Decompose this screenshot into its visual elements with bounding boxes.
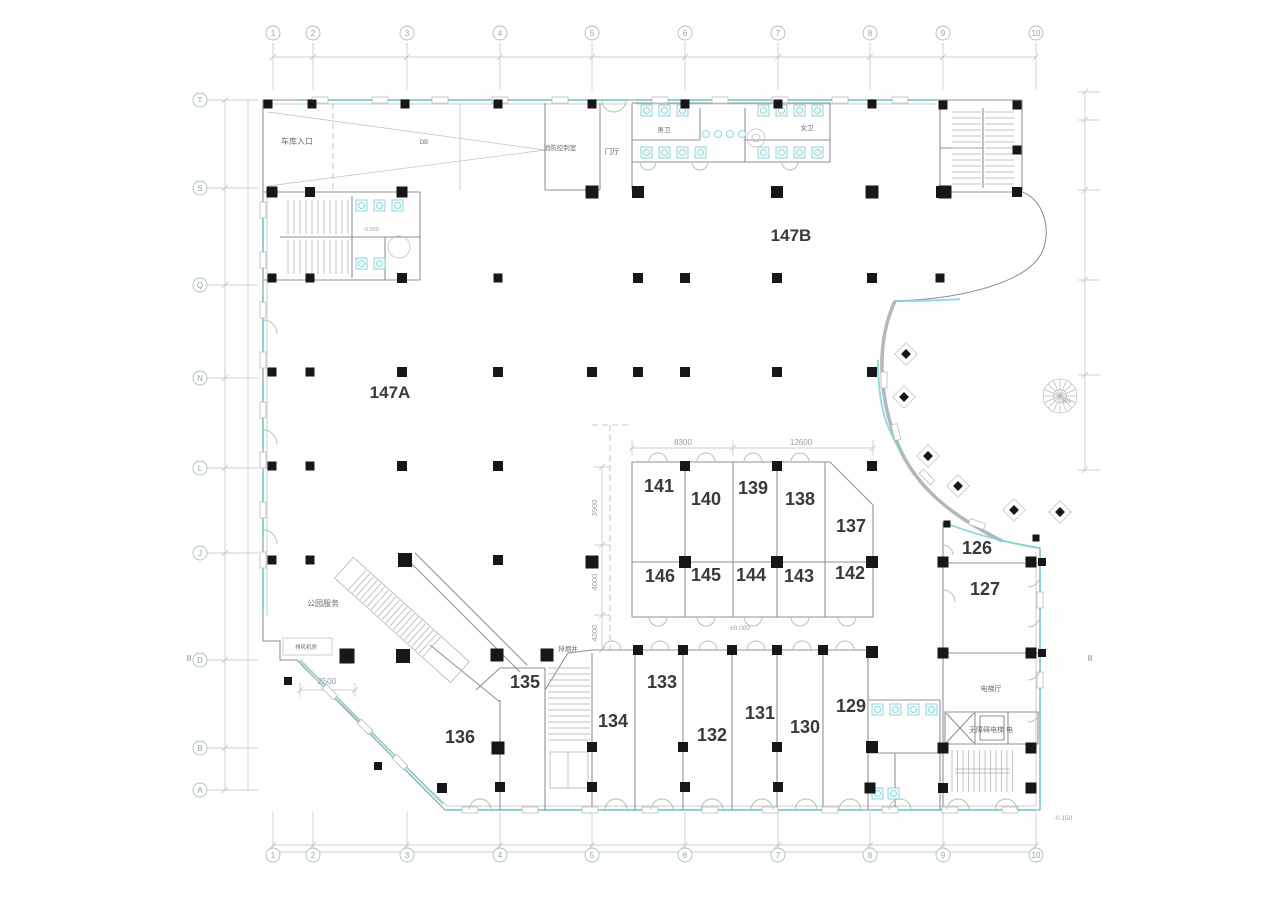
toilet-bowl: [815, 150, 821, 156]
diamond-column: [893, 386, 916, 409]
grid-label-left-L: L: [198, 464, 203, 473]
room-label-146: 146: [645, 566, 675, 586]
room-label-135: 135: [510, 672, 540, 692]
toilet-bowl: [761, 108, 767, 114]
spiral-stair: [1043, 379, 1077, 413]
curved-curtain-wall: [882, 301, 1002, 541]
wash-basin: [703, 131, 710, 138]
column: [284, 677, 292, 685]
window-sill: [552, 97, 568, 103]
grid-label-bottom-7: 7: [776, 851, 781, 860]
diamond-column: [947, 475, 970, 498]
column: [268, 556, 277, 565]
labels-layer: 147A147B14114013913813714614514414314212…: [187, 123, 1092, 822]
window-sill: [260, 352, 266, 368]
column: [397, 187, 408, 198]
window-sill: [832, 97, 848, 103]
column: [774, 100, 783, 109]
column: [586, 186, 599, 199]
column: [1013, 101, 1022, 110]
grid-label-top-10: 10: [1032, 29, 1041, 38]
column: [944, 521, 951, 528]
room-label-144: 144: [736, 565, 766, 585]
window-sill: [260, 552, 266, 568]
column: [1026, 557, 1037, 568]
window-sill: [260, 452, 266, 468]
column: [586, 556, 599, 569]
column: [678, 645, 688, 655]
grid-label-left-D: D: [197, 656, 203, 665]
grid-label-top-5: 5: [590, 29, 595, 38]
grid-label-top-1: 1: [271, 29, 276, 38]
column: [437, 783, 447, 793]
annotation-label: 男卫: [658, 126, 672, 134]
dimension-ticks: [222, 54, 1088, 848]
window-sill: [822, 807, 838, 813]
grid-label-top-7: 7: [776, 29, 781, 38]
annotation-label: 女卫: [801, 123, 815, 132]
column: [818, 645, 828, 655]
column: [867, 367, 877, 377]
room-label-127: 127: [970, 579, 1000, 599]
grid-label-top-2: 2: [311, 29, 316, 38]
column: [680, 782, 690, 792]
window-sill: [702, 807, 718, 813]
grid-label-left-A: A: [197, 786, 203, 795]
column: [587, 782, 597, 792]
dimension-label: 3900: [590, 500, 599, 517]
hall-label-147B: 147B: [771, 226, 812, 245]
window-sill: [357, 719, 373, 735]
column: [866, 646, 878, 658]
column: [938, 743, 949, 754]
column: [1026, 743, 1037, 754]
column: [491, 649, 504, 662]
room-label-126: 126: [962, 538, 992, 558]
wash-basin: [727, 131, 734, 138]
plumbing-fixtures: [356, 105, 937, 799]
room-label-139: 139: [738, 478, 768, 498]
grid-label-bottom-9: 9: [941, 851, 946, 860]
toilet-bowl: [815, 108, 821, 114]
annotation-label: 消防控制室: [544, 143, 577, 152]
column: [495, 782, 505, 792]
toilet-bowl: [377, 203, 383, 209]
column: [494, 274, 503, 283]
column: [493, 367, 503, 377]
elevation-label: -0.030: [363, 227, 379, 233]
wash-basin: [715, 131, 722, 138]
window-sill: [260, 252, 266, 268]
elevation-label: -0.150: [1054, 815, 1073, 822]
column: [868, 100, 877, 109]
window-sill: [652, 97, 668, 103]
round-feature: [752, 134, 760, 142]
window-sill: [462, 807, 478, 813]
column: [1013, 146, 1022, 155]
column: [771, 186, 783, 198]
elevation-label: 5%: [1063, 399, 1072, 405]
dimension-label: 8300: [674, 438, 692, 447]
floor-plan-svg: 1234567891012345678910TSQNLJDBA: [0, 0, 1280, 905]
column: [866, 186, 879, 199]
window-sill: [432, 97, 448, 103]
wash-basin: [739, 131, 746, 138]
grid-label-left-Q: Q: [197, 281, 203, 290]
window-sill: [582, 807, 598, 813]
column: [680, 367, 690, 377]
toilet-bowl: [395, 203, 401, 209]
column: [867, 461, 877, 471]
toilet-bowl: [875, 707, 881, 713]
floor-plan-canvas: 1234567891012345678910TSQNLJDBA: [0, 0, 1280, 905]
window-sill: [522, 807, 538, 813]
window-sill: [322, 684, 338, 700]
grid-label-left-N: N: [197, 374, 203, 383]
room-label-138: 138: [785, 489, 815, 509]
annotation-label: 车库入口: [281, 136, 313, 146]
column: [1012, 187, 1022, 197]
column: [268, 462, 277, 471]
column: [588, 100, 597, 109]
column: [587, 367, 597, 377]
window-sill: [892, 97, 908, 103]
toilet-bowl: [893, 707, 899, 713]
column: [938, 648, 949, 659]
grid-label-bottom-8: 8: [868, 851, 873, 860]
elevation-label: ±0.000: [730, 625, 750, 632]
toilet-bowl: [911, 707, 917, 713]
column: [264, 100, 273, 109]
dimension-label: 12600: [790, 438, 813, 447]
column: [1026, 648, 1037, 659]
window-sill: [642, 807, 658, 813]
window-sill: [1002, 807, 1018, 813]
bottom-strip-units: [408, 553, 868, 810]
window-sill: [260, 202, 266, 218]
column: [397, 367, 407, 377]
grid-label-bottom-5: 5: [590, 851, 595, 860]
column: [679, 556, 691, 568]
column: [772, 645, 782, 655]
grid-label-bottom-2: 2: [311, 851, 316, 860]
round-feature: [747, 129, 765, 147]
room-label-130: 130: [790, 717, 820, 737]
dimension-label: 2500: [318, 676, 337, 686]
toilet-bowl: [359, 203, 365, 209]
column: [633, 273, 643, 283]
diamond-column: [1049, 501, 1072, 524]
section-marker: II: [187, 654, 191, 663]
diamond-columns: [893, 343, 1072, 524]
column: [306, 368, 315, 377]
room-label-134: 134: [598, 711, 628, 731]
column: [681, 100, 690, 109]
room-label-131: 131: [745, 703, 775, 723]
column: [401, 100, 410, 109]
column: [772, 461, 782, 471]
column: [268, 368, 277, 377]
column: [1038, 649, 1046, 657]
window-sill: [372, 97, 388, 103]
column: [939, 101, 948, 110]
window-sill: [881, 372, 887, 388]
column: [396, 649, 410, 663]
toilet-bowl: [680, 150, 686, 156]
grid-label-left-S: S: [197, 184, 202, 193]
column: [680, 461, 690, 471]
toilet-bowl: [662, 150, 668, 156]
window-sill: [762, 807, 778, 813]
column: [306, 462, 315, 471]
column: [938, 557, 949, 568]
toilet-bowl: [779, 150, 785, 156]
escalator: [335, 557, 470, 682]
column: [727, 645, 737, 655]
grid-label-top-3: 3: [405, 29, 410, 38]
column: [1033, 535, 1040, 542]
toilet-bowl: [698, 150, 704, 156]
annotation-label: 公园服务: [307, 598, 339, 608]
window-sill: [712, 97, 728, 103]
section-marker: II: [1088, 654, 1092, 663]
column: [772, 273, 782, 283]
column: [867, 273, 877, 283]
window-sill: [260, 302, 266, 318]
round-feature: [388, 236, 410, 258]
column: [541, 649, 554, 662]
grid-label-bottom-4: 4: [498, 851, 503, 860]
toilet-bowl: [662, 108, 668, 114]
column: [866, 556, 878, 568]
annotation-label: 电梯厅: [981, 684, 1002, 693]
column: [866, 741, 878, 753]
room-label-136: 136: [445, 727, 475, 747]
column: [633, 645, 643, 655]
window-sill: [882, 807, 898, 813]
hall-label-147A: 147A: [370, 383, 411, 402]
column: [939, 186, 952, 199]
diamond-column: [895, 343, 918, 366]
column: [1026, 783, 1037, 794]
window-sill: [1037, 592, 1043, 608]
column: [680, 273, 690, 283]
toilet-bowl: [377, 261, 383, 267]
column: [305, 187, 315, 197]
grid-label-bottom-1: 1: [271, 851, 276, 860]
room-label-137: 137: [836, 516, 866, 536]
grid-label-left-B: B: [197, 744, 202, 753]
column: [306, 556, 315, 565]
column: [1038, 558, 1046, 566]
column: [938, 783, 948, 793]
toilet-bowl: [359, 261, 365, 267]
room-label-141: 141: [644, 476, 674, 496]
column: [268, 274, 277, 283]
room-label-129: 129: [836, 696, 866, 716]
room-label-143: 143: [784, 566, 814, 586]
column: [308, 100, 317, 109]
column: [632, 186, 644, 198]
room-label-140: 140: [691, 489, 721, 509]
column: [374, 762, 382, 770]
column: [397, 461, 407, 471]
toilet-bowl: [644, 108, 650, 114]
column: [865, 783, 876, 794]
toilet-bowl: [929, 707, 935, 713]
toilet-bowl: [644, 150, 650, 156]
column: [398, 553, 412, 567]
dimension-label: 4000: [590, 574, 599, 591]
annotation-label: 无障碍电梯 电: [969, 725, 1013, 734]
room-label-132: 132: [697, 725, 727, 745]
diamond-column: [917, 445, 940, 468]
annotation-label: DB: [420, 140, 428, 146]
window-sill: [942, 807, 958, 813]
window-sill: [260, 402, 266, 418]
column: [587, 742, 597, 752]
grid-label-bottom-3: 3: [405, 851, 410, 860]
column: [493, 461, 503, 471]
window-sill: [392, 754, 408, 770]
column: [678, 742, 688, 752]
garage-ramp: [268, 103, 545, 190]
column: [771, 556, 783, 568]
room-label-142: 142: [835, 563, 865, 583]
room-label-145: 145: [691, 565, 721, 585]
column: [633, 367, 643, 377]
grid-label-top-4: 4: [498, 29, 503, 38]
window-sill: [260, 502, 266, 518]
column: [492, 742, 505, 755]
toilet-bowl: [797, 108, 803, 114]
column: [267, 187, 278, 198]
grid-label-bottom-10: 10: [1032, 851, 1041, 860]
column: [306, 274, 315, 283]
grid-label-top-6: 6: [683, 29, 688, 38]
grid-label-left-T: T: [198, 96, 203, 105]
grid-label-top-8: 8: [868, 29, 873, 38]
annotation-label: 门厅: [605, 147, 620, 156]
column: [397, 273, 407, 283]
annotation-label: 排风机房: [295, 643, 318, 651]
grid-label-bottom-6: 6: [683, 851, 688, 860]
column: [493, 555, 503, 565]
toilet-bowl: [761, 150, 767, 156]
column: [772, 742, 782, 752]
column: [773, 782, 783, 792]
column: [936, 274, 945, 283]
annotation-label: 排烟井: [558, 644, 578, 653]
column: [494, 100, 503, 109]
toilet-bowl: [891, 791, 897, 797]
grid-label-left-J: J: [198, 549, 202, 558]
column: [772, 367, 782, 377]
diamond-column: [1003, 499, 1026, 522]
grid-label-top-9: 9: [941, 29, 946, 38]
toilet-bowl: [797, 150, 803, 156]
dimension-label: 4200: [590, 625, 599, 642]
column: [340, 649, 355, 664]
room-label-133: 133: [647, 672, 677, 692]
